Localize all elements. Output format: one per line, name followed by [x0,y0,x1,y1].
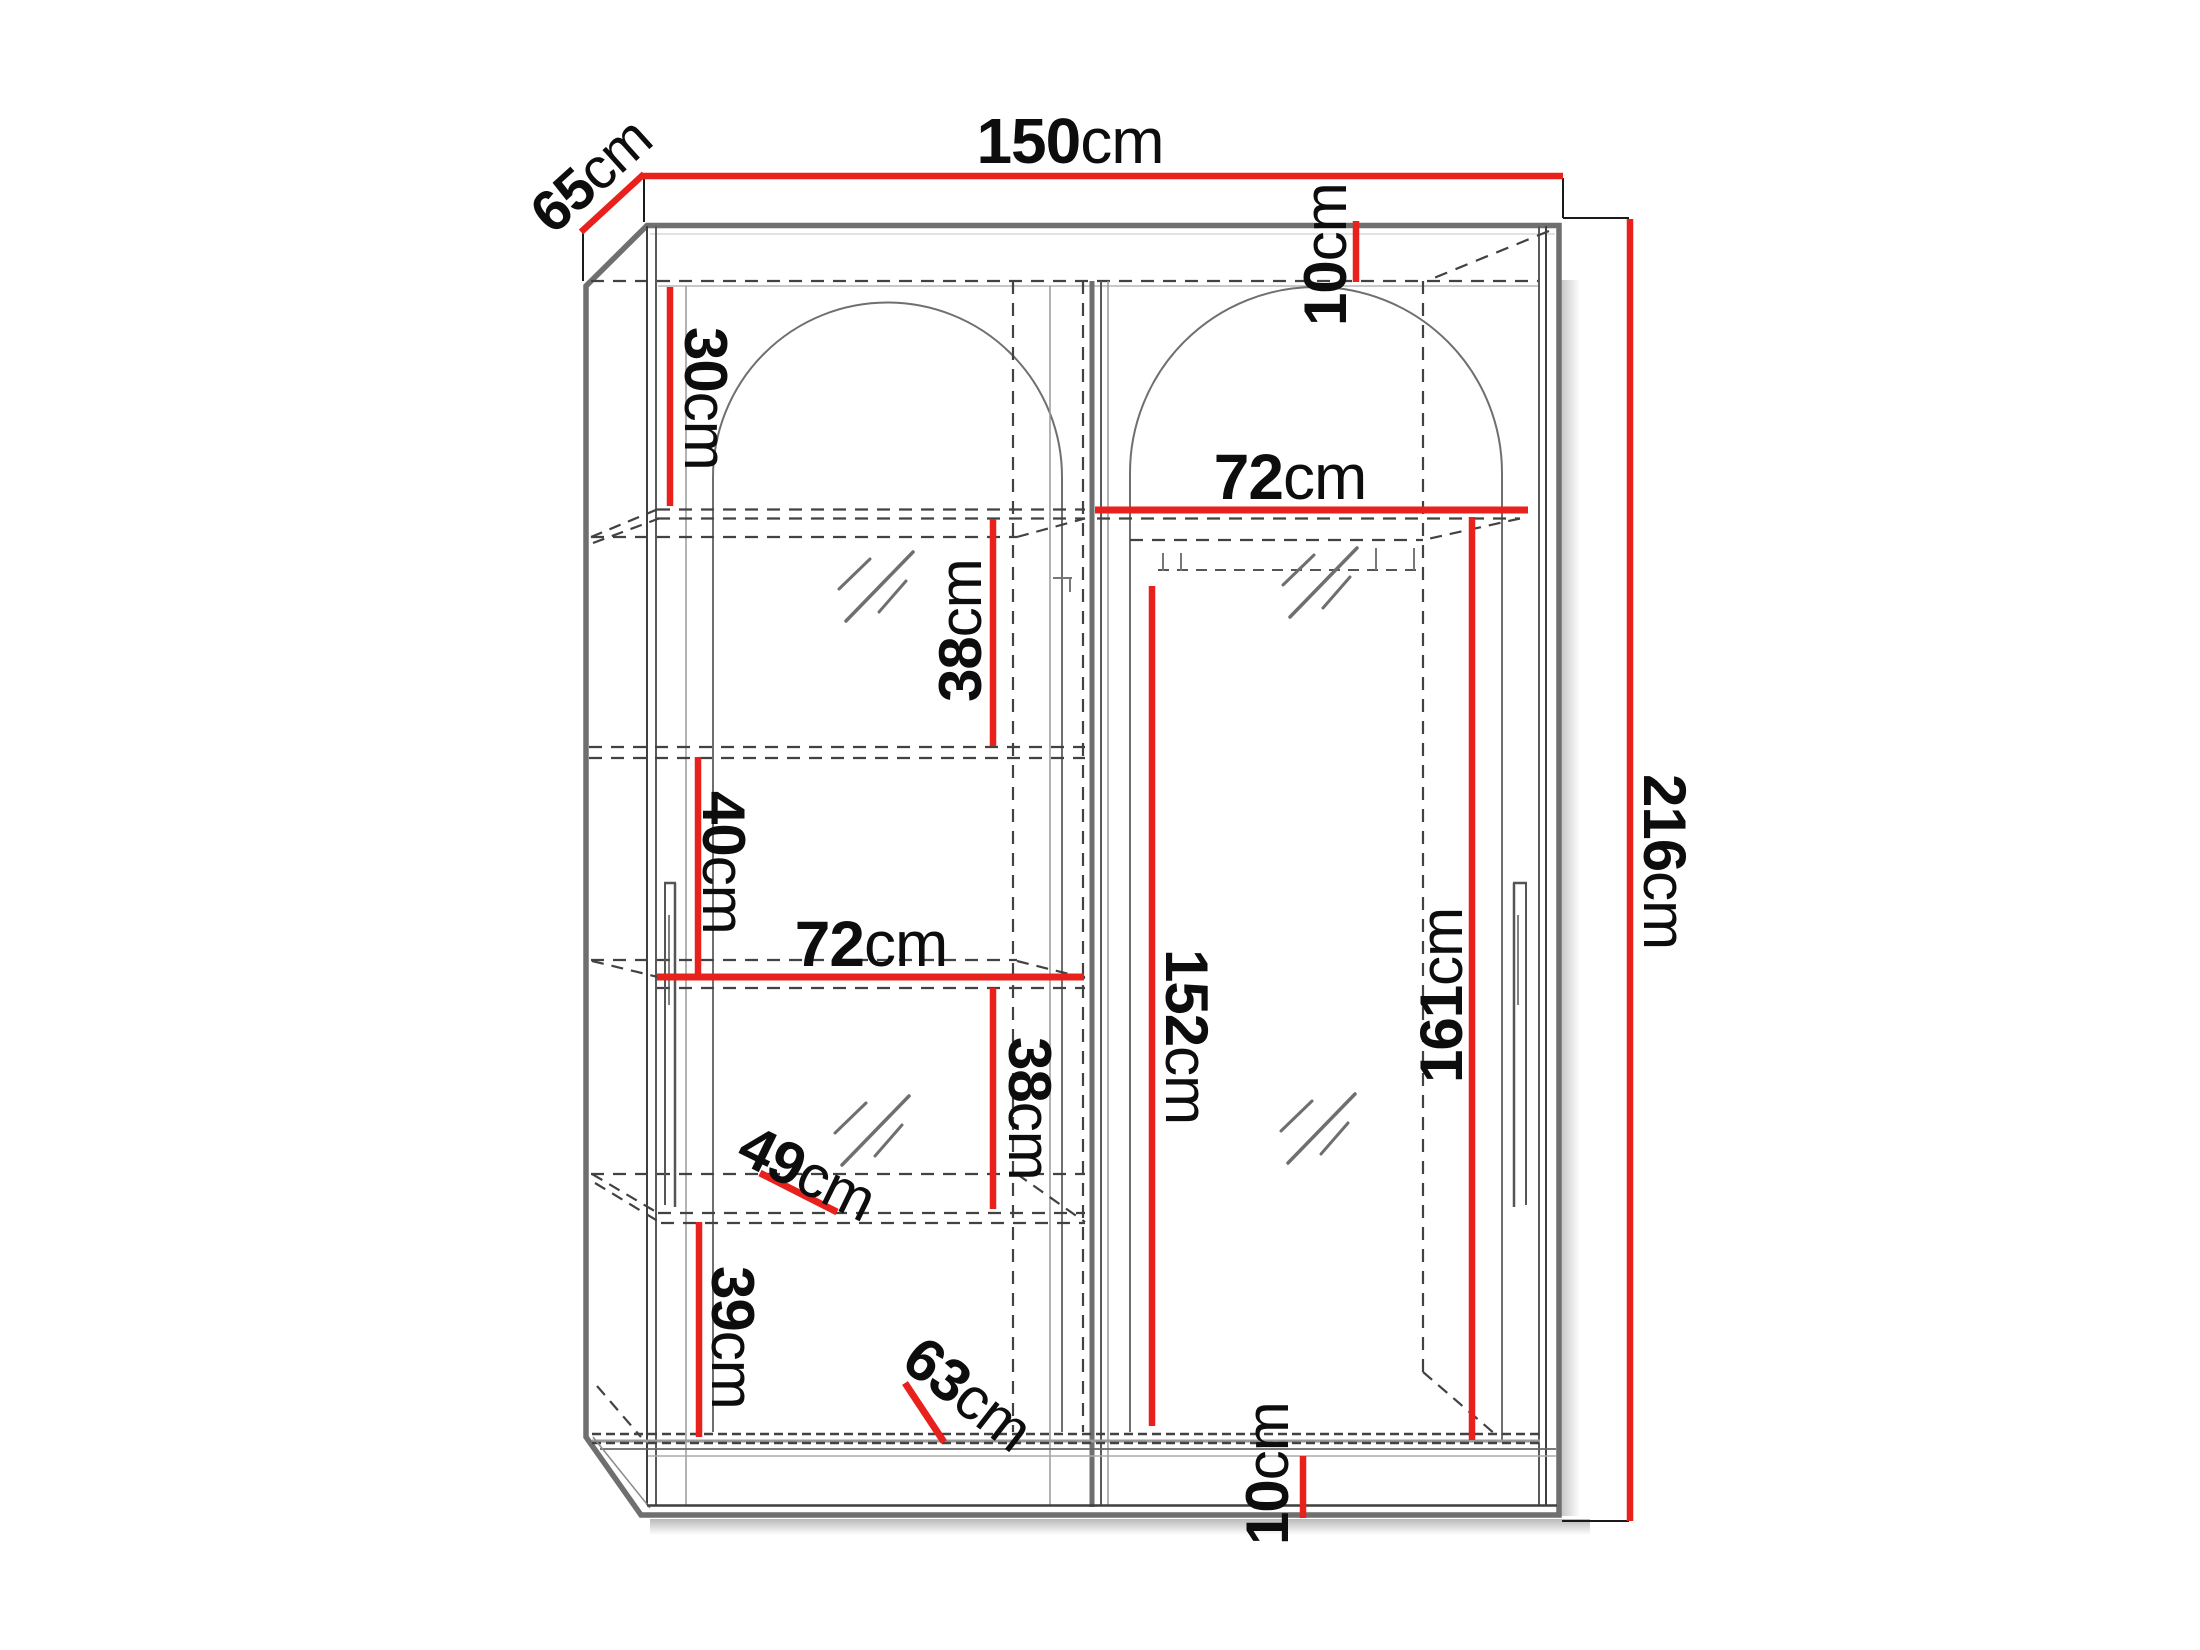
svg-text:150cm: 150cm [976,105,1163,177]
svg-text:72cm: 72cm [1214,441,1367,513]
svg-text:38cm: 38cm [996,1037,1063,1180]
svg-text:216cm: 216cm [1631,774,1698,949]
svg-text:30cm: 30cm [672,327,739,470]
svg-text:72cm: 72cm [795,908,948,980]
svg-text:39cm: 39cm [699,1266,766,1409]
svg-text:40cm: 40cm [690,791,757,934]
svg-text:152cm: 152cm [1153,949,1220,1124]
svg-text:161cm: 161cm [1408,908,1475,1083]
svg-text:38cm: 38cm [927,559,994,702]
svg-text:10cm: 10cm [1292,183,1359,326]
svg-text:10cm: 10cm [1234,1402,1301,1545]
